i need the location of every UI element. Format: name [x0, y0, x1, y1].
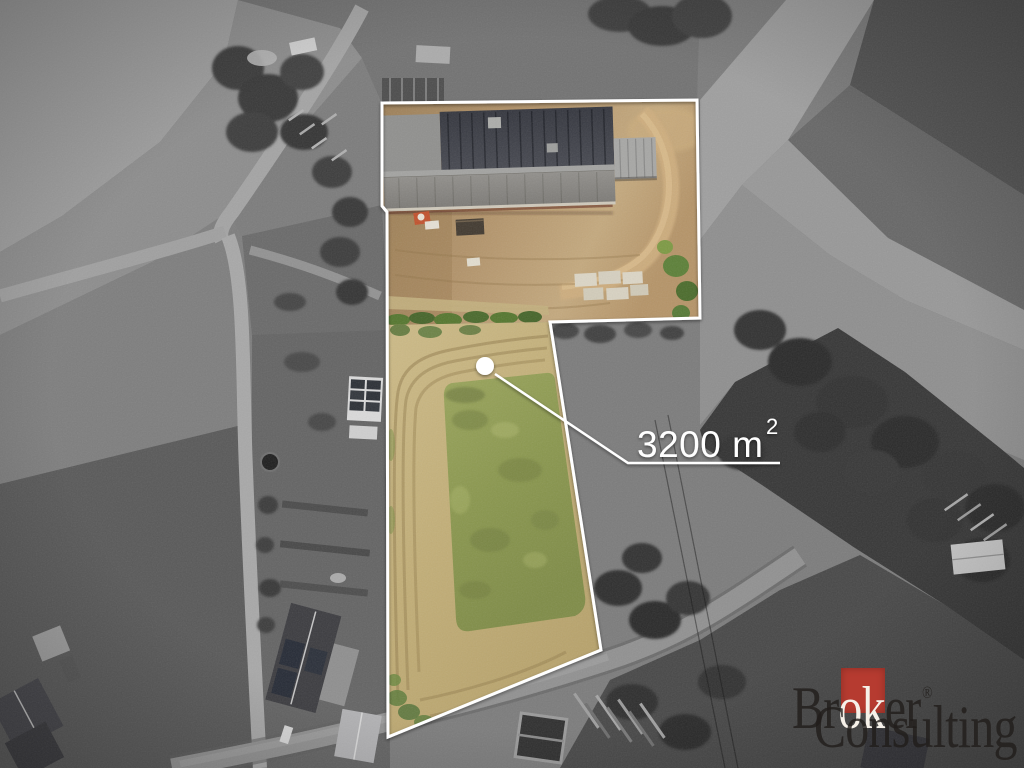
marker-dot	[476, 357, 494, 375]
screenshot-root: 3200 m 2 Broker® Consulting	[0, 0, 1024, 768]
area-label: 3200 m	[637, 424, 763, 465]
aerial-photo: 3200 m 2	[0, 0, 1024, 768]
area-exponent: 2	[766, 414, 778, 439]
